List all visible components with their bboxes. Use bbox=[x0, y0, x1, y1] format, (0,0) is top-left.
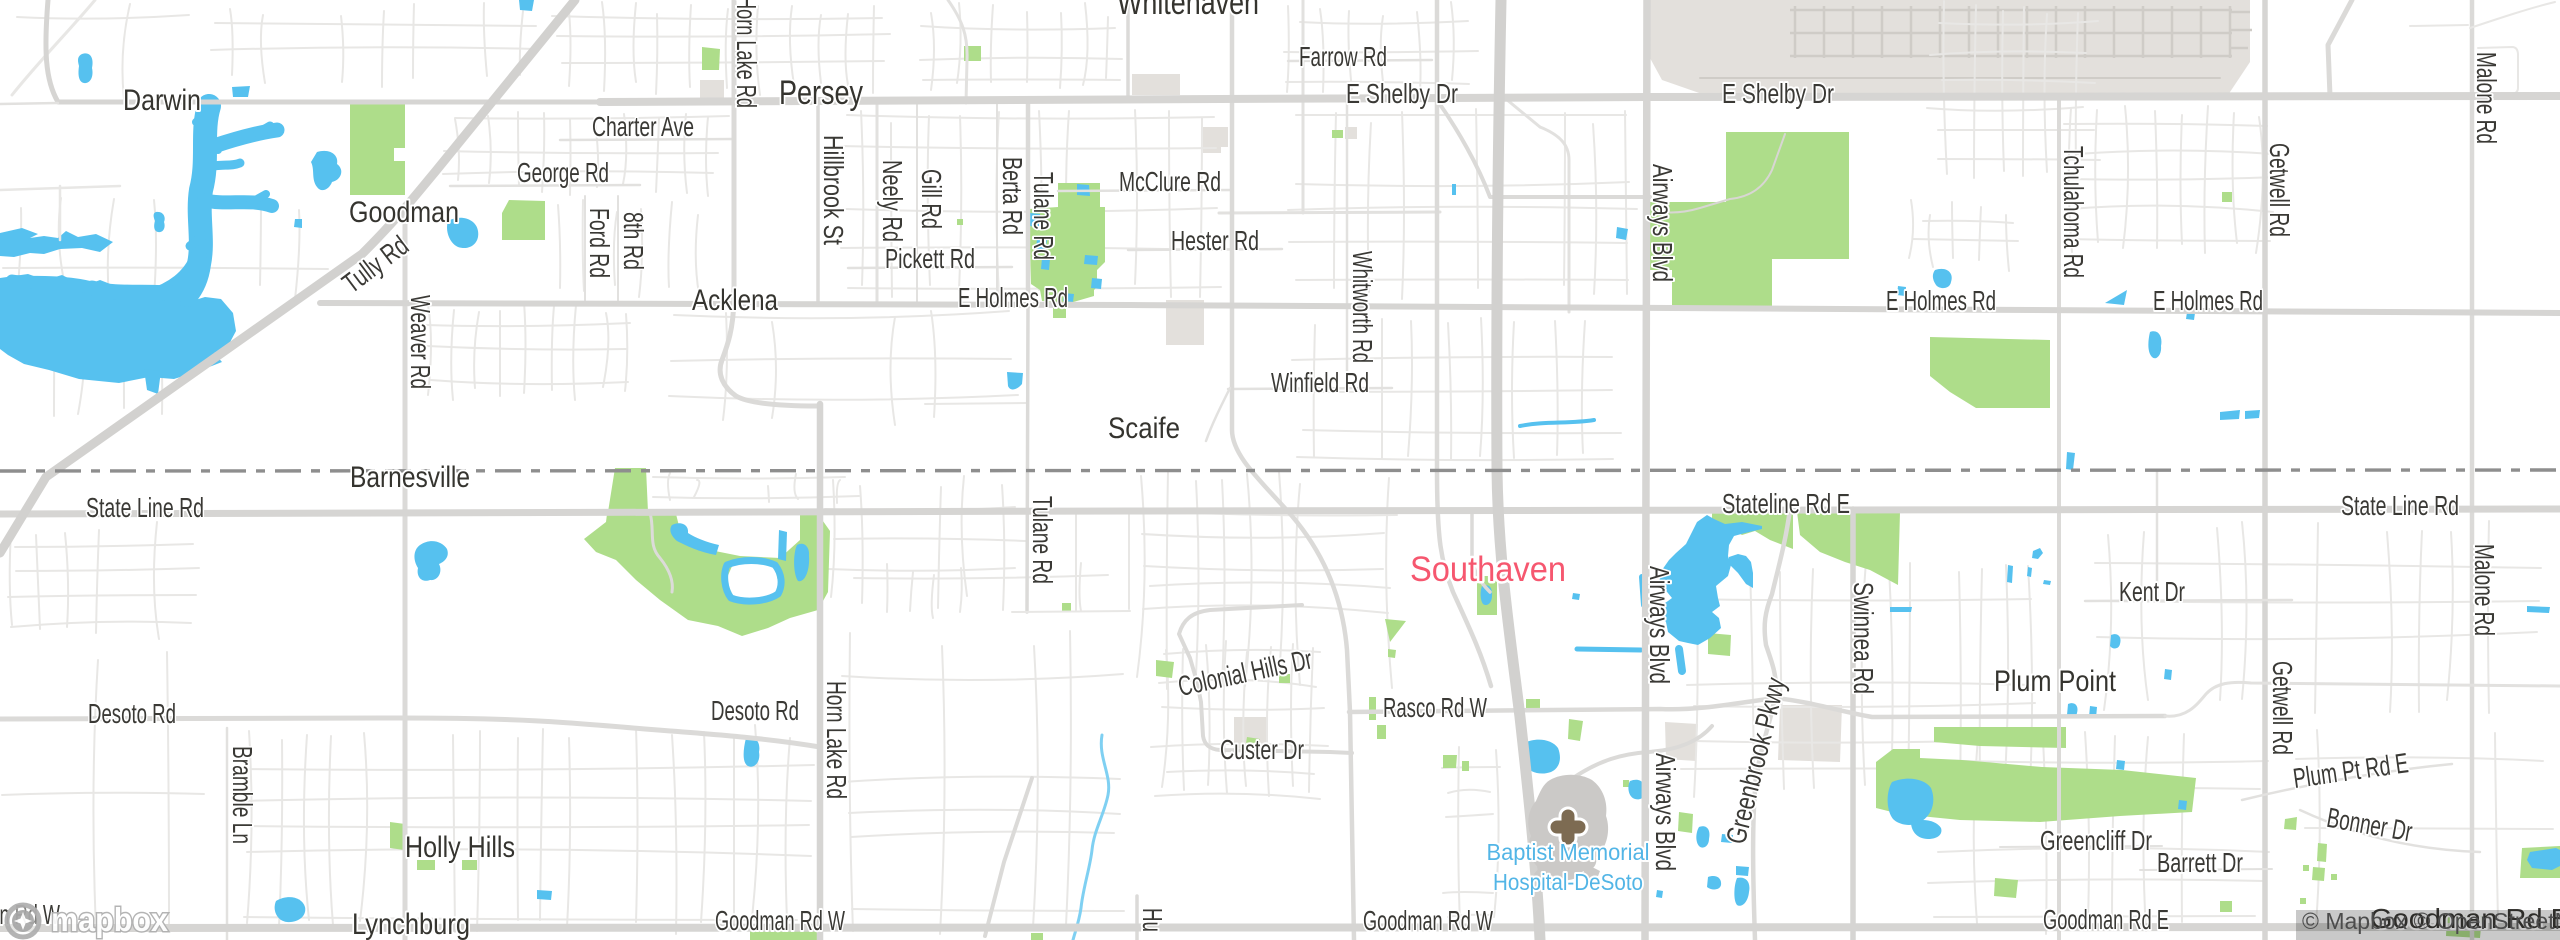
svg-text:Goodman Rd W: Goodman Rd W bbox=[715, 905, 845, 936]
svg-text:Darwin: Darwin bbox=[123, 84, 201, 117]
svg-text:Plum Point: Plum Point bbox=[1994, 665, 2117, 698]
svg-text:Airways Blvd: Airways Blvd bbox=[1647, 164, 1678, 282]
svg-text:Goodman Rd E: Goodman Rd E bbox=[2043, 904, 2169, 935]
svg-text:Bramble Ln: Bramble Ln bbox=[227, 746, 258, 844]
svg-text:E Shelby Dr: E Shelby Dr bbox=[1722, 78, 1834, 109]
svg-text:E Holmes Rd: E Holmes Rd bbox=[2153, 285, 2263, 316]
svg-text:8th Rd: 8th Rd bbox=[618, 212, 649, 270]
svg-text:Scaife: Scaife bbox=[1108, 412, 1180, 445]
svg-text:Goodman: Goodman bbox=[349, 196, 459, 229]
svg-text:Weaver Rd: Weaver Rd bbox=[405, 295, 436, 389]
svg-text:Neely Rd: Neely Rd bbox=[877, 160, 908, 242]
svg-text:Hester Rd: Hester Rd bbox=[1171, 225, 1259, 256]
svg-text:Airways Blvd: Airways Blvd bbox=[1650, 753, 1681, 871]
svg-text:Holly Hills: Holly Hills bbox=[405, 831, 515, 864]
svg-text:Barnesville: Barnesville bbox=[350, 461, 470, 494]
svg-text:Horn Lake Rd: Horn Lake Rd bbox=[821, 681, 852, 799]
svg-text:Desoto Rd: Desoto Rd bbox=[711, 695, 799, 726]
svg-text:Desoto Rd: Desoto Rd bbox=[88, 698, 176, 729]
svg-text:Rasco Rd W: Rasco Rd W bbox=[1383, 692, 1487, 723]
svg-text:McClure Rd: McClure Rd bbox=[1119, 166, 1221, 197]
svg-text:Farrow Rd: Farrow Rd bbox=[1299, 41, 1387, 72]
svg-text:Kent Dr: Kent Dr bbox=[2119, 576, 2185, 607]
svg-text:Malone Rd: Malone Rd bbox=[2469, 544, 2500, 636]
svg-text:State Line Rd: State Line Rd bbox=[2341, 490, 2459, 521]
svg-text:Lynchburg: Lynchburg bbox=[352, 908, 470, 940]
svg-text:Baptist Memorial: Baptist Memorial bbox=[1487, 839, 1650, 865]
svg-text:Charter Ave: Charter Ave bbox=[592, 111, 694, 142]
svg-text:Tulane Rd: Tulane Rd bbox=[1028, 172, 1059, 260]
svg-text:Tulane Rd: Tulane Rd bbox=[1027, 496, 1058, 584]
svg-text:Ford Rd: Ford Rd bbox=[584, 208, 615, 278]
svg-text:Custer Dr: Custer Dr bbox=[1220, 734, 1304, 765]
svg-text:Hospital-DeSoto: Hospital-DeSoto bbox=[1493, 869, 1643, 895]
svg-text:State Line Rd: State Line Rd bbox=[86, 492, 204, 523]
svg-text:Whitworth Rd: Whitworth Rd bbox=[1347, 251, 1378, 363]
svg-text:Greencliff Dr: Greencliff Dr bbox=[2040, 825, 2152, 856]
svg-text:E Holmes Rd: E Holmes Rd bbox=[1886, 285, 1996, 316]
svg-text:E Shelby Dr: E Shelby Dr bbox=[1346, 78, 1458, 109]
svg-text:© Mapbox © OpenStreetMap: © Mapbox © OpenStreetMap bbox=[2302, 908, 2560, 934]
svg-text:Hillbrook St: Hillbrook St bbox=[818, 135, 849, 245]
svg-text:Acklena: Acklena bbox=[692, 284, 778, 317]
svg-text:Southaven: Southaven bbox=[1410, 550, 1566, 589]
svg-text:Getwell Rd: Getwell Rd bbox=[2264, 143, 2295, 237]
svg-text:Stateline Rd E: Stateline Rd E bbox=[1722, 488, 1850, 519]
svg-text:Barrett Dr: Barrett Dr bbox=[2157, 847, 2243, 878]
svg-text:George Rd: George Rd bbox=[517, 157, 609, 188]
svg-text:Getwell Rd: Getwell Rd bbox=[2267, 661, 2298, 755]
svg-text:Hu: Hu bbox=[1137, 908, 1168, 932]
svg-text:E Holmes Rd: E Holmes Rd bbox=[958, 282, 1068, 313]
svg-text:Tchulahoma Rd: Tchulahoma Rd bbox=[2058, 146, 2089, 278]
svg-text:Winfield Rd: Winfield Rd bbox=[1271, 367, 1369, 398]
svg-text:Malone Rd: Malone Rd bbox=[2471, 52, 2502, 144]
svg-text:Goodman Rd W: Goodman Rd W bbox=[1363, 905, 1493, 936]
svg-text:Swinnea Rd: Swinnea Rd bbox=[1848, 582, 1879, 694]
svg-text:Whitehaven: Whitehaven bbox=[1117, 0, 1259, 22]
svg-text:Horn Lake Rd: Horn Lake Rd bbox=[731, 0, 762, 108]
svg-text:Pickett Rd: Pickett Rd bbox=[885, 243, 975, 274]
svg-text:Gill Rd: Gill Rd bbox=[916, 169, 947, 229]
svg-text:Berta Rd: Berta Rd bbox=[997, 157, 1028, 235]
svg-text:Persey: Persey bbox=[779, 74, 863, 112]
svg-text:mapbox: mapbox bbox=[51, 901, 169, 938]
svg-text:Airways Blvd: Airways Blvd bbox=[1644, 566, 1675, 684]
